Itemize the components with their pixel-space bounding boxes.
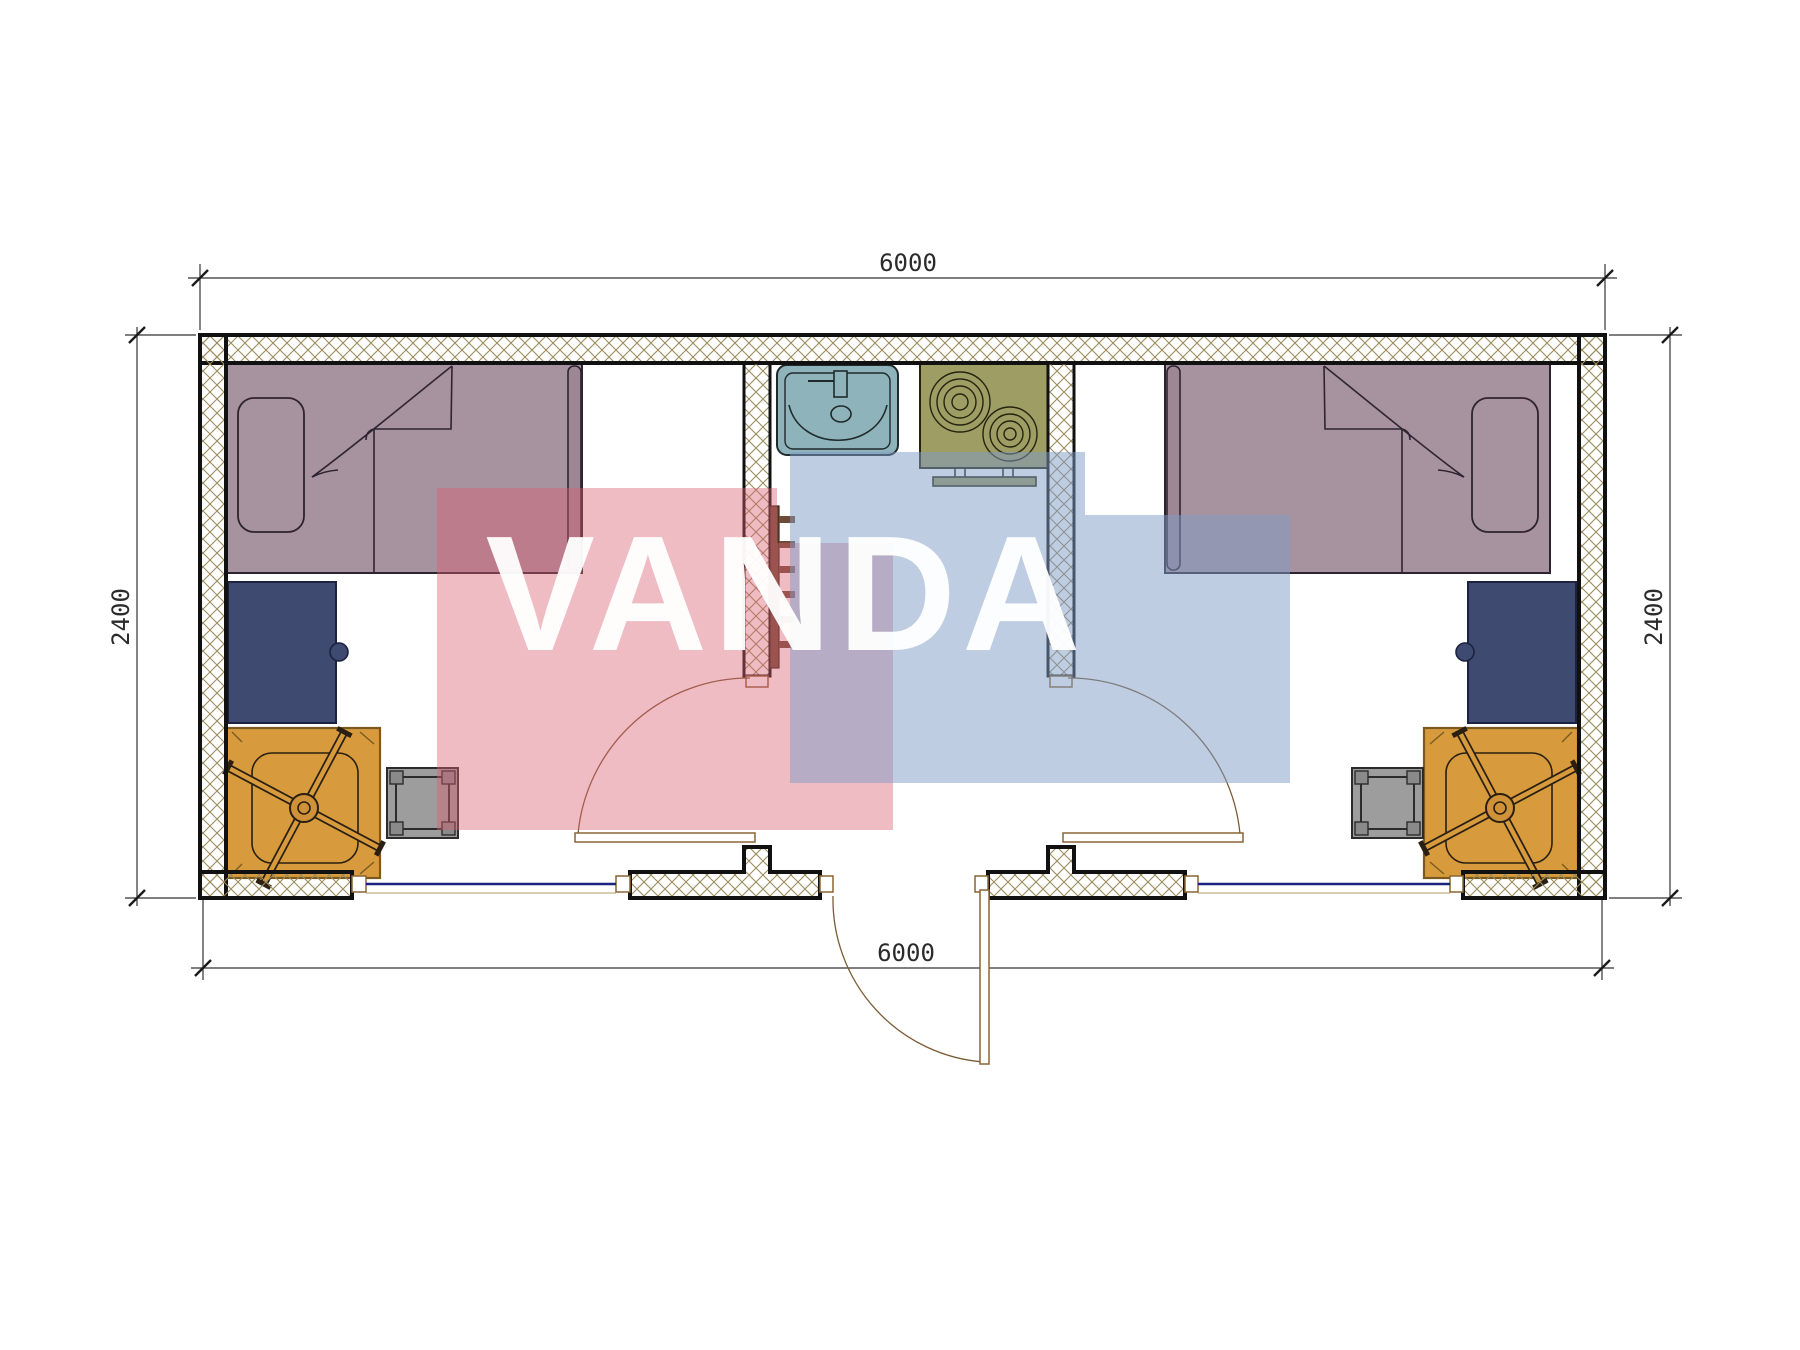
right-stool <box>1352 768 1423 838</box>
door-frame <box>820 876 833 892</box>
kitchen-sink <box>777 365 898 455</box>
floor-plan-drawing: 6000 6000 2400 2400 <box>0 0 1800 1350</box>
right-desk <box>1456 582 1576 723</box>
floor-plan-canvas: 6000 6000 2400 2400 <box>0 0 1800 1350</box>
left-wall <box>200 335 226 898</box>
window-frame <box>352 876 366 892</box>
watermark: VANDA <box>437 452 1290 830</box>
left-dimension: 2400 <box>107 327 196 906</box>
entrance-door-leaf <box>980 890 989 1064</box>
entrance-door-swing-arc <box>833 896 984 1062</box>
right-door-leaf <box>1063 833 1243 842</box>
top-dimension-label: 6000 <box>879 249 937 277</box>
right-desk-knob <box>1456 643 1474 661</box>
window-frame <box>1450 876 1463 892</box>
left-door-leaf <box>575 833 755 842</box>
bottom-dimension: 6000 <box>191 900 1614 980</box>
left-desk-knob <box>330 643 348 661</box>
right-dimension-label: 2400 <box>1640 588 1668 646</box>
window-frame <box>1185 876 1198 892</box>
top-wall <box>200 335 1605 363</box>
bottom-wall-left-corner <box>200 872 352 898</box>
bottom-wall-left-mid <box>630 847 820 898</box>
left-dimension-label: 2400 <box>107 588 135 646</box>
window-frame <box>616 876 630 892</box>
bottom-dimension-label: 6000 <box>877 939 935 967</box>
bottom-wall-right-mid <box>988 847 1185 898</box>
right-bed-pillow <box>1472 398 1538 532</box>
watermark-text: VANDA <box>486 502 1087 685</box>
faucet <box>834 371 847 397</box>
left-bed-pillow <box>238 398 304 532</box>
left-desk <box>228 582 348 723</box>
bottom-wall-right-corner <box>1463 872 1605 898</box>
right-dimension: 2400 <box>1609 327 1682 906</box>
top-dimension: 6000 <box>188 249 1617 330</box>
right-wall <box>1579 335 1605 898</box>
